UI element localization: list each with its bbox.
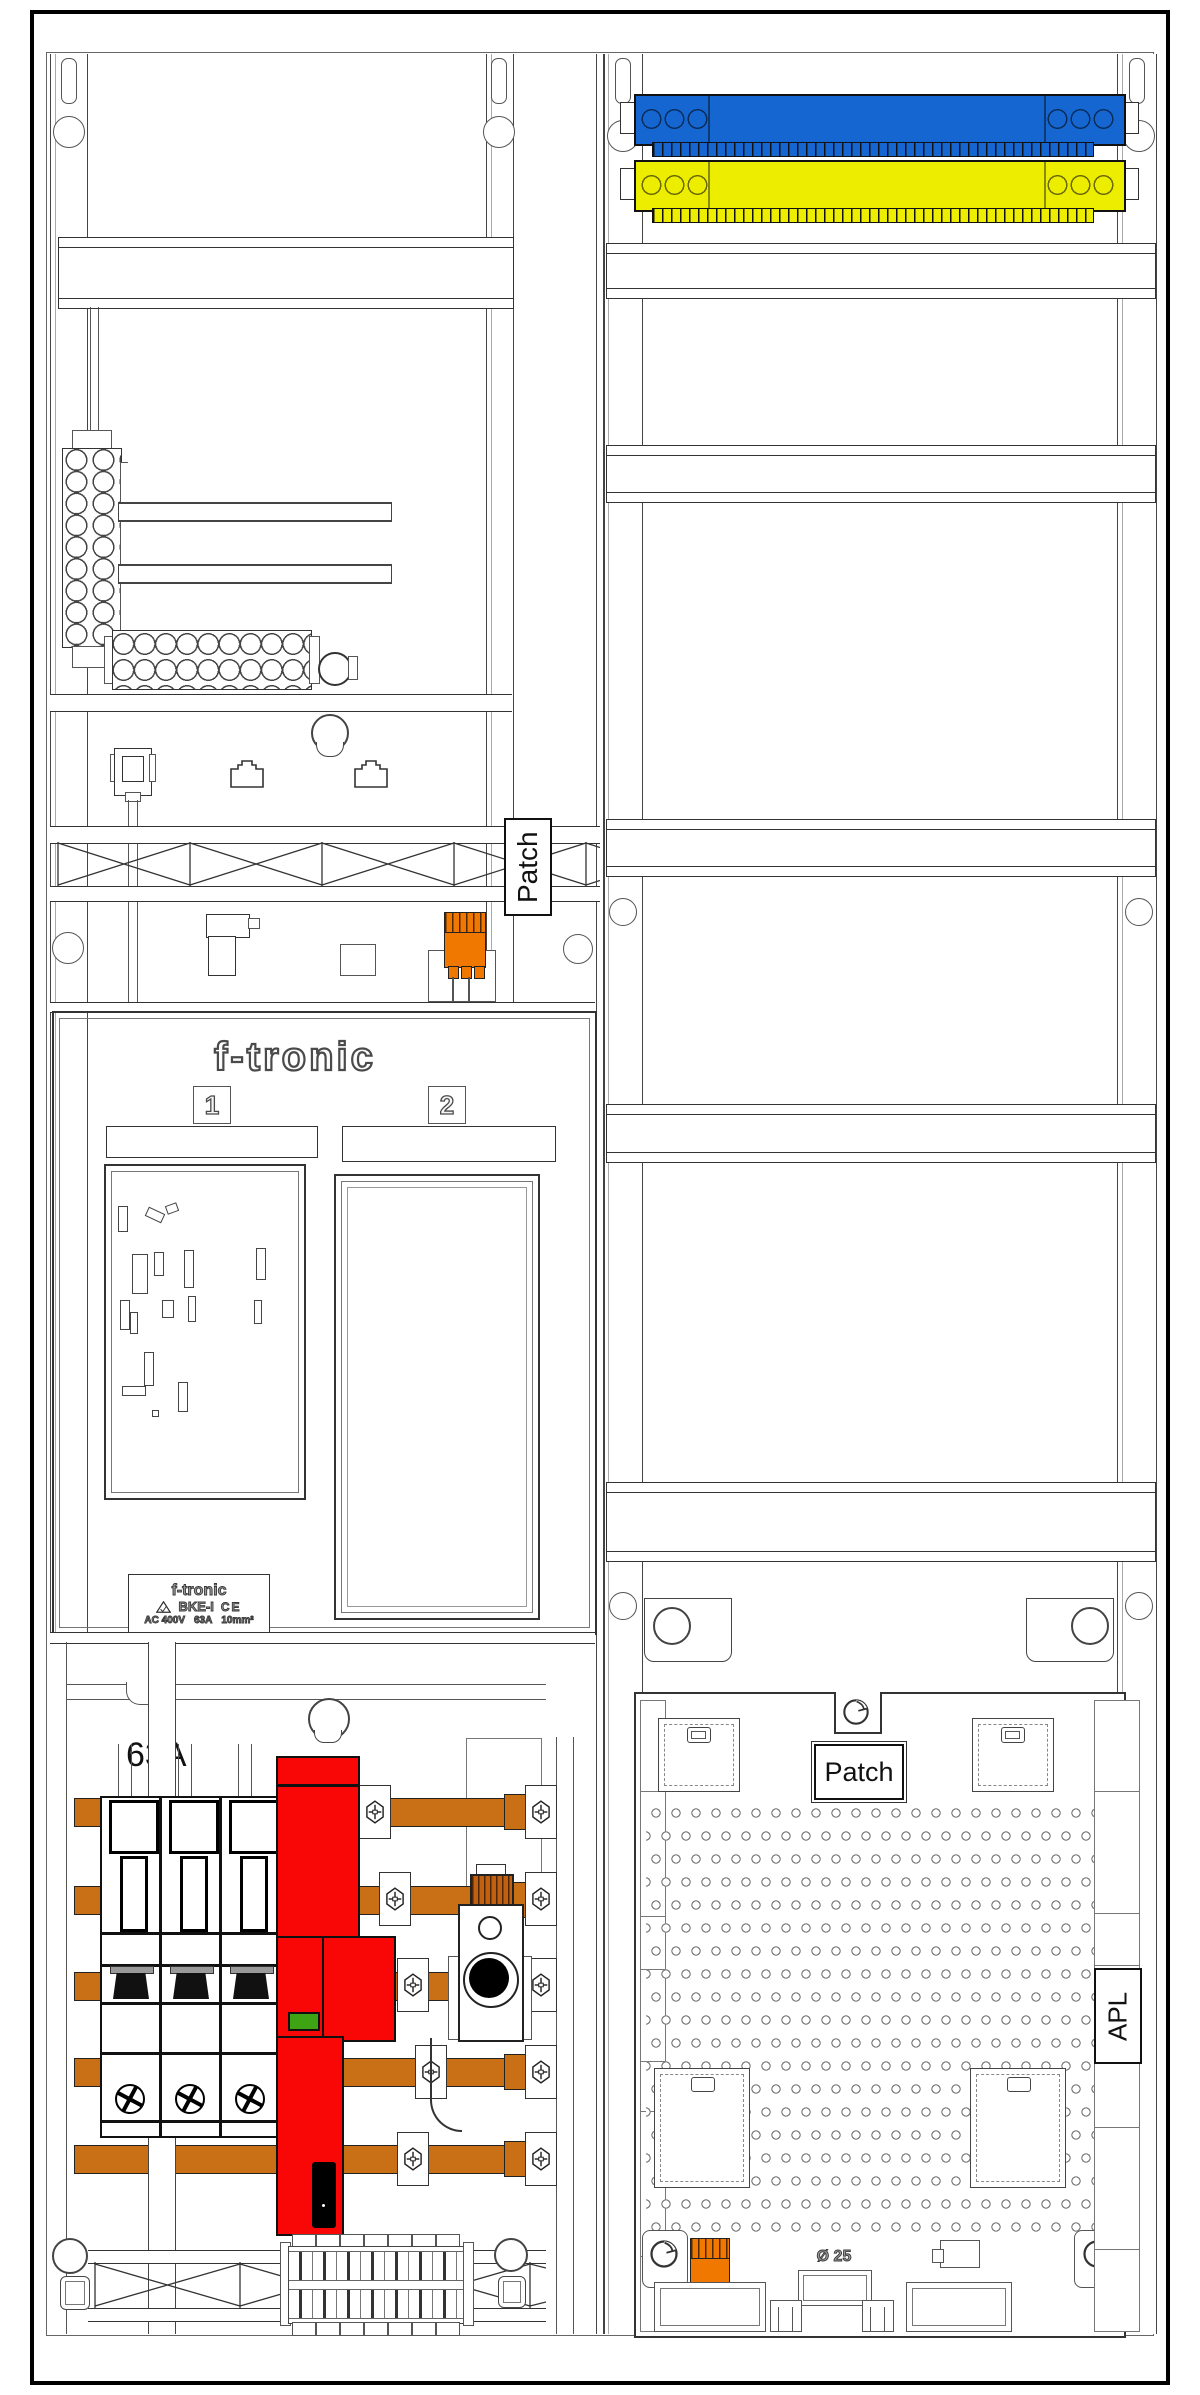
mounting-hole: [53, 116, 85, 148]
busbar-clamp: [397, 2132, 429, 2186]
junction-box: [208, 936, 236, 976]
terminal-screw-icon: [235, 2084, 265, 2114]
fuse-link-body: [120, 1856, 148, 1932]
brand-logo-text: f-tronic: [214, 1035, 376, 1080]
knockout-diameter-label: Ø 25: [796, 2246, 872, 2268]
corner-fixing-hole: [494, 2238, 528, 2272]
strip-seam: [1095, 1965, 1139, 1966]
din-rail: [58, 237, 514, 309]
cable-tray: [654, 2282, 766, 2332]
panel-cutout: [970, 2068, 1066, 2188]
cable-tray-inner: [912, 2288, 1006, 2326]
side-profile: [50, 1642, 67, 2334]
busbar-clamp: [525, 2132, 557, 2186]
ce-mark: CE: [221, 1600, 242, 1614]
fuse-grid-line: [102, 2002, 280, 2005]
meter-mechanism-detail: [184, 1250, 194, 1288]
rj45-icon: [230, 760, 264, 788]
mounting-slot: [615, 58, 631, 104]
cable-entry-foot: [314, 1730, 342, 1743]
hex-screw-icon: [532, 1887, 550, 1911]
terminal-holes: [1046, 106, 1116, 132]
hinge-hole: [1071, 1607, 1109, 1645]
meter-mechanism-detail: [120, 1300, 130, 1330]
fuse-link-top: [169, 1800, 219, 1854]
meter-field-2-number: 2: [440, 1090, 454, 1121]
fuse-switch-3pole: [100, 1796, 282, 2138]
strip-seam: [1095, 1913, 1139, 1914]
nameplate-brand: f-tronic: [171, 1582, 226, 1599]
rj45-icon: [354, 760, 388, 788]
hex-screw-icon: [532, 2060, 550, 2084]
strip-seam: [1095, 2249, 1139, 2250]
meter-field-1-inner: [111, 1171, 299, 1493]
fixing-bracket: [348, 656, 358, 680]
busbar-clamp: [397, 1958, 429, 2012]
pe-terminal-comb: [652, 208, 1094, 223]
knockout-plate: [798, 2270, 872, 2306]
switch-handle-slot: [312, 2162, 336, 2228]
fuse-grid-line: [159, 1798, 162, 2136]
mounting-hole: [1125, 898, 1153, 926]
fuse-grid-line: [219, 1798, 222, 2136]
meter-cradle-bar: [342, 1126, 556, 1162]
hex-screw-icon: [532, 1973, 550, 1997]
stud-contact: [469, 1958, 509, 1998]
mounting-hole: [609, 1592, 637, 1620]
knockout-diameter-text: Ø 25: [817, 2248, 852, 2266]
nameplate-ratings-row: AC 400V 63A 10mm²: [144, 1615, 253, 1627]
column-divider: [596, 54, 605, 2334]
meter-field-2-inner2: [347, 1187, 527, 1607]
terminal-strip-row: [289, 2289, 465, 2319]
meter-mechanism-detail: [152, 1410, 159, 1417]
pin-wire: [452, 977, 454, 1003]
terminal-screw-icon: [175, 2084, 205, 2114]
block-seam: [1044, 162, 1046, 210]
accessory-box-step: [932, 2249, 944, 2263]
vertical-channel: [556, 1737, 574, 2334]
nameplate-model: BKE-I: [178, 1600, 213, 1614]
nameplate-model-row: BKE-I CE: [156, 1600, 241, 1614]
fuse-handle: [173, 1973, 209, 1999]
meter-field-2-tag: 2: [428, 1086, 466, 1124]
fuse-grid-line: [102, 2052, 280, 2055]
cutout-clip: [1001, 1727, 1025, 1743]
fuse-feed-wire: [238, 1744, 252, 1796]
mounting-slot: [1129, 58, 1145, 104]
apl-label-plate: APL: [1094, 1968, 1142, 2064]
terminal-block-cap: [72, 430, 112, 450]
clamp-u-slot: [870, 2307, 885, 2332]
meter-mechanism-detail: [254, 1300, 262, 1324]
cable-tray: [906, 2282, 1012, 2332]
main-switch-mid-left: [276, 1936, 328, 2042]
wire-duct: [90, 307, 99, 448]
type-nameplate: f-tronic BKE-I CE AC 400V 63A 10mm²: [128, 1574, 270, 1634]
meter-mechanism-detail: [144, 1352, 154, 1386]
terminal-screw-icon: [115, 2084, 145, 2114]
hex-screw-icon: [386, 1887, 404, 1911]
meter-mechanism-detail: [130, 1312, 138, 1334]
terminal-holes: [640, 172, 710, 198]
cutout-clip: [691, 2077, 715, 2092]
terminal-strip-row: [289, 2251, 465, 2281]
terminal-strip: [288, 2246, 466, 2324]
hex-screw-icon: [532, 2147, 550, 2171]
corner-bracket: [498, 2276, 526, 2308]
slot-dot: [322, 2204, 325, 2207]
horizontal-terminal-block: [112, 630, 312, 690]
clip-inner: [1005, 1731, 1020, 1739]
wire-arc: [430, 2038, 462, 2132]
terminal-holes: [1046, 172, 1116, 198]
din-rail: [606, 1104, 1156, 1163]
busbar-clamp: [525, 2045, 557, 2099]
hex-screw-icon: [366, 1800, 384, 1824]
corner-bracket: [60, 2276, 90, 2310]
mounting-hole: [563, 934, 593, 964]
hex-screw-icon: [404, 2147, 422, 2171]
fuse-handle-top: [170, 1966, 214, 1974]
main-switch-seam: [278, 1784, 358, 1787]
strip-seam: [1095, 1791, 1139, 1792]
din-rail: [606, 243, 1156, 299]
patch-label: Patch: [512, 831, 544, 903]
fuse-handle: [113, 1973, 149, 1999]
busbar-clamp: [379, 1872, 411, 1926]
cable-clamp: [862, 2300, 894, 2332]
meter-mechanism-detail: [122, 1386, 146, 1396]
meter-field-1-tag: 1: [193, 1086, 231, 1124]
hinge-hole: [653, 1607, 691, 1645]
clip-inner: [691, 1731, 706, 1739]
fuse-handle: [233, 1973, 269, 1999]
din-rail: [606, 445, 1156, 503]
mounting-hole: [609, 898, 637, 926]
block-seam: [1044, 96, 1046, 144]
busbar-clamp: [525, 1785, 557, 1839]
terminal-holes: [640, 106, 710, 132]
apl-panel: Patch Ø 25: [634, 1692, 1126, 2338]
orange-connector-cap: [444, 912, 486, 934]
patch-label-plate: Patch: [504, 818, 552, 916]
nameplate-current: 63A: [194, 1615, 212, 1627]
cert-triangle-icon: [156, 1601, 171, 1613]
brand-logo: f-tronic: [180, 1030, 410, 1084]
main-switch-mid-right: [322, 1936, 396, 2042]
fuse-grid-line: [102, 1932, 280, 1935]
panel-hinge-tab: [644, 1598, 732, 1662]
stud-small-hole: [478, 1916, 502, 1940]
fuse-handle-top: [110, 1966, 154, 1974]
meter-mechanism-detail: [256, 1248, 266, 1280]
pe-terminal-block: [634, 160, 1126, 212]
mounting-hole: [483, 116, 515, 148]
lock-icon: [649, 2239, 679, 2269]
main-terminal-stud: [458, 1904, 524, 2042]
junction-box-flag: [248, 918, 260, 929]
busbar-clamp: [525, 1872, 557, 1926]
meter-mechanism-detail: [118, 1206, 128, 1232]
cable-clamp: [770, 2300, 802, 2332]
indicator-window: [288, 2012, 320, 2031]
support-rail: [118, 502, 392, 522]
junction-box: [206, 914, 250, 938]
fuse-feed-wire: [178, 1744, 192, 1796]
patch-label-plate: Patch: [814, 1744, 904, 1800]
panel-cutout: [654, 2068, 750, 2188]
meter-field-1: [104, 1164, 306, 1500]
din-rail: [606, 819, 1156, 877]
shelf-profile: [50, 694, 512, 712]
cable-tray-inner: [660, 2288, 760, 2326]
meter-mechanism-detail: [188, 1296, 196, 1322]
fuse-handle-top: [230, 1966, 274, 1974]
accessory-box: [940, 2240, 980, 2268]
cutout-clip: [1007, 2077, 1031, 2092]
meter-cradle-bar: [106, 1126, 318, 1158]
hex-screw-icon: [532, 1800, 550, 1824]
vertical-terminal-block: [62, 448, 122, 648]
main-switch-top: [276, 1756, 360, 1942]
panel-cutout: [658, 1718, 740, 1792]
neutral-terminal-comb: [652, 142, 1094, 157]
main-switch-bottom: [276, 2036, 344, 2236]
corner-bracket-inner: [65, 2281, 85, 2305]
apl-label: APL: [1103, 1991, 1134, 2040]
meter-field-2: [334, 1174, 540, 1620]
corner-lock-bracket: [642, 2230, 688, 2288]
cabinet-diagram: Patch f-tronic 1 2: [0, 0, 1200, 2395]
mounting-slot: [491, 58, 507, 104]
fuse-link-top: [109, 1800, 159, 1854]
mounting-slot: [61, 58, 77, 104]
fuse-link-body: [240, 1856, 268, 1932]
meter-field-1-number: 1: [205, 1090, 219, 1121]
block-seam: [708, 162, 710, 210]
patch-label: Patch: [824, 1757, 893, 1788]
mounting-hole: [1125, 1592, 1153, 1620]
corner-bracket-inner: [503, 2281, 521, 2303]
fuse-link-body: [180, 1856, 208, 1932]
rj45-plug: [122, 756, 144, 782]
strip-seam: [1095, 2127, 1139, 2128]
busbar-clamp: [359, 1785, 391, 1839]
panel-cutout: [972, 1718, 1054, 1792]
knockout-plate-inner: [803, 2275, 867, 2301]
mounting-hole: [52, 932, 84, 964]
junction-box: [340, 944, 376, 976]
section-divider: [50, 1632, 595, 1644]
clamp-u-slot: [778, 2307, 793, 2332]
terminal-block-tabs: [120, 462, 128, 634]
cutout-clip: [687, 1727, 711, 1743]
block-seam: [708, 96, 710, 144]
fuse-link-top: [229, 1800, 279, 1854]
hex-screw-icon: [404, 1973, 422, 1997]
pin-wire: [468, 977, 470, 1003]
terminal-strip-end: [463, 2242, 474, 2326]
connector-pin: [474, 966, 485, 979]
terminal-strip-tabs: [292, 2322, 460, 2336]
panel-hinge-tab: [1026, 1598, 1114, 1662]
nameplate-voltage: AC 400V: [144, 1615, 185, 1627]
connector-pin: [461, 966, 472, 979]
orange-connector-cap: [690, 2238, 730, 2260]
lock-icon: [842, 1698, 870, 1726]
fixing-screw: [318, 652, 352, 686]
meter-mechanism-detail: [178, 1382, 188, 1412]
support-rail: [118, 564, 392, 584]
corner-fixing-hole: [52, 2238, 88, 2274]
fuse-grid-line: [102, 2120, 280, 2123]
orange-connector-body: [444, 932, 486, 968]
nameplate-cross-section: 10mm²: [221, 1615, 253, 1627]
neutral-terminal-block: [634, 94, 1126, 146]
fuse-feed-wire: [118, 1744, 132, 1796]
terminal-block-end: [309, 636, 320, 684]
meter-mechanism-detail: [132, 1254, 148, 1294]
din-rail: [606, 1482, 1156, 1562]
rj45-plug-ear: [149, 754, 156, 782]
meter-mechanism-detail: [162, 1300, 174, 1318]
meter-mechanism-detail: [154, 1252, 164, 1276]
